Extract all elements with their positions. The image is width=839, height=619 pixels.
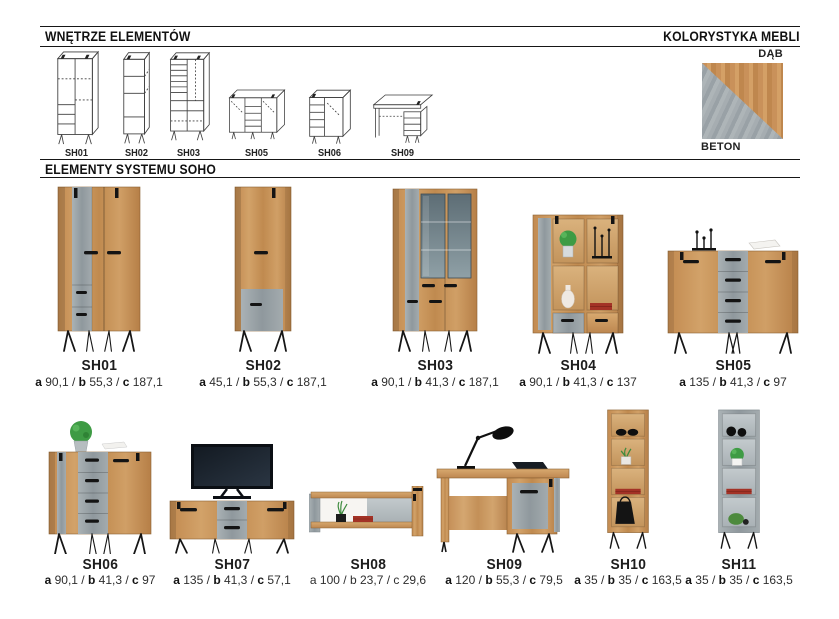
section-title-interiors: WNĘTRZE ELEMENTÓW <box>45 29 207 44</box>
diagram-sh02: SH02 <box>116 50 158 162</box>
product-photo-sh03 <box>355 185 515 355</box>
diagram-label: SH05 <box>226 148 288 159</box>
product-card-sh01: SH01 a 90,1 / b 55,3 / c 187,1 <box>19 185 179 397</box>
product-card-sh02: SH02 a 45,1 / b 55,3 / c 187,1 <box>183 185 343 397</box>
product-name: SH11 <box>664 556 814 573</box>
product-card-sh04: SH04 a 90,1 / b 41,3 / c 137 <box>498 185 658 397</box>
product-photo-sh02 <box>183 185 343 355</box>
diagram-sh05: SH05 <box>226 50 288 162</box>
product-name: SH02 <box>183 357 343 374</box>
product-name: SH07 <box>157 556 307 573</box>
diagram-label: SH06 <box>303 148 357 159</box>
product-name: SH08 <box>293 556 443 573</box>
product-card-sh11: SH11 a 35 / b 35 / c 163,5 <box>664 410 814 610</box>
diagram-label: SH02 <box>116 148 158 159</box>
diagram-label: SH09 <box>372 148 434 159</box>
color-swatch <box>702 63 783 139</box>
diagram-label: SH03 <box>164 148 214 159</box>
product-dimensions: a 45,1 / b 55,3 / c 187,1 <box>165 375 361 389</box>
product-photo-sh04 <box>498 185 658 355</box>
product-dimensions: a 135 / b 41,3 / c 97 <box>635 375 831 389</box>
diagram-drawing-sh05 <box>226 50 288 146</box>
divider <box>40 159 800 160</box>
divider <box>40 46 800 47</box>
product-card-sh05: SH05 a 135 / b 41,3 / c 97 <box>653 185 813 397</box>
product-name: SH04 <box>498 357 658 374</box>
diagram-label: SH01 <box>52 148 102 159</box>
section-title-elements: ELEMENTY SYSTEMU SOHO <box>45 162 235 177</box>
divider <box>40 177 800 178</box>
diagram-drawing-sh01 <box>52 50 102 146</box>
product-photo-sh01 <box>19 185 179 355</box>
product-name: SH06 <box>25 556 175 573</box>
divider <box>40 26 800 27</box>
product-photo-sh06 <box>25 410 175 554</box>
product-photo-sh08 <box>293 410 443 554</box>
diagram-sh03: SH03 <box>164 50 214 162</box>
diagram-drawing-sh06 <box>303 50 357 146</box>
section-title-colors: KOLORYSTYKA MEBLI <box>648 29 800 44</box>
product-photo-sh05 <box>653 185 813 355</box>
product-photo-sh11 <box>664 410 814 554</box>
product-card-sh03: SH03 a 90,1 / b 41,3 / c 187,1 <box>355 185 515 397</box>
diagram-drawing-sh03 <box>164 50 214 146</box>
product-name: SH05 <box>653 357 813 374</box>
catalog-page: WNĘTRZE ELEMENTÓW KOLORYSTYKA MEBLI SH01 <box>0 0 839 619</box>
product-dimensions: a 35 / b 35 / c 163,5 <box>646 573 832 587</box>
diagram-sh01: SH01 <box>52 50 102 162</box>
concrete-texture <box>702 63 783 139</box>
swatch-label-oak: DĄB <box>702 48 783 60</box>
diagram-sh06: SH06 <box>303 50 357 162</box>
diagram-drawing-sh09 <box>372 50 434 146</box>
diagram-drawing-sh02 <box>116 50 158 146</box>
product-name: SH01 <box>19 357 179 374</box>
product-photo-sh07 <box>157 410 307 554</box>
diagram-sh09: SH09 <box>372 50 434 162</box>
swatch-label-concrete: BETON <box>701 141 741 153</box>
product-name: SH03 <box>355 357 515 374</box>
